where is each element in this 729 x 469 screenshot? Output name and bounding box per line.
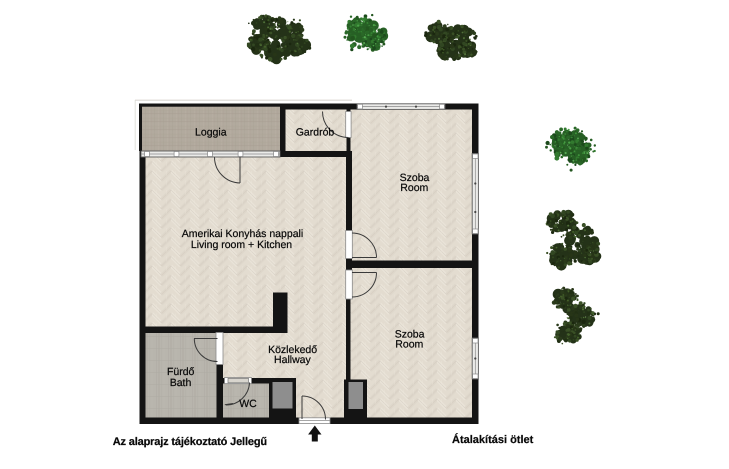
svg-text:Room: Room — [395, 339, 423, 351]
svg-text:Room: Room — [400, 182, 428, 194]
svg-text:Átalakítási ötlet: Átalakítási ötlet — [452, 433, 534, 446]
svg-text:Amerikai Konyhás nappali: Amerikai Konyhás nappali — [182, 228, 303, 240]
svg-text:Hallway: Hallway — [274, 354, 312, 366]
svg-text:Living room + Kitchen: Living room + Kitchen — [191, 239, 292, 251]
svg-text:Az alaprajz tájékoztató Jelleg: Az alaprajz tájékoztató Jellegű — [113, 436, 268, 448]
svg-text:Loggia: Loggia — [195, 126, 227, 138]
svg-text:Gardrób: Gardrób — [296, 126, 335, 138]
svg-text:Bath: Bath — [170, 377, 192, 389]
svg-text:WC: WC — [239, 398, 257, 410]
